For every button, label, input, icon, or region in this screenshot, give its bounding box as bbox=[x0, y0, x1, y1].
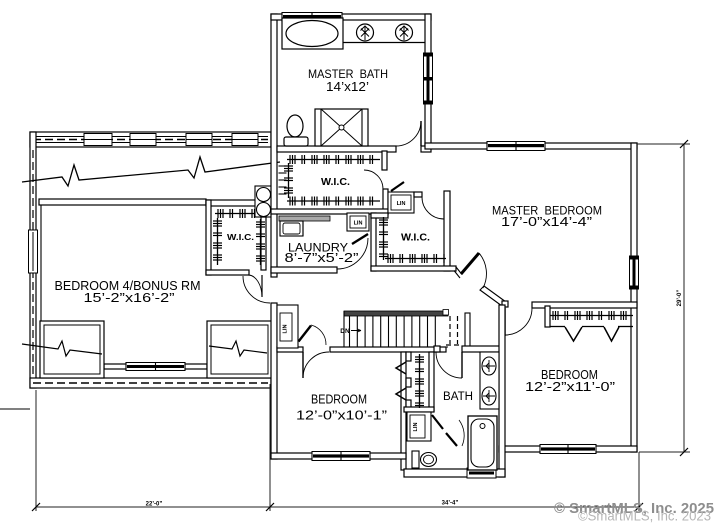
svg-text:12’-2”x11’-0”: 12’-2”x11’-0” bbox=[525, 380, 615, 394]
svg-text:W.I.C.: W.I.C. bbox=[321, 176, 350, 188]
svg-text:BATH: BATH bbox=[443, 391, 473, 403]
svg-text:12’-0”x10’-1”: 12’-0”x10’-1” bbox=[296, 409, 387, 423]
svg-text:29’-0”: 29’-0” bbox=[677, 290, 683, 307]
svg-text:8’-7”x5’-2”: 8’-7”x5’-2” bbox=[285, 251, 359, 265]
svg-text:LIN: LIN bbox=[283, 325, 289, 334]
svg-text:22’-0”: 22’-0” bbox=[146, 502, 163, 508]
svg-text:LIN: LIN bbox=[397, 201, 406, 207]
svg-text:DN: DN bbox=[340, 328, 350, 335]
svg-text:W.I.C.: W.I.C. bbox=[227, 232, 254, 242]
svg-text:©SmartMLS, Inc. 2023: ©SmartMLS, Inc. 2023 bbox=[578, 508, 711, 524]
svg-text:17’-0”x14’-4”: 17’-0”x14’-4” bbox=[501, 215, 592, 229]
svg-text:W.I.C.: W.I.C. bbox=[401, 232, 430, 244]
svg-text:34’-4”: 34’-4” bbox=[442, 501, 459, 507]
svg-text:14’x12’: 14’x12’ bbox=[326, 80, 369, 94]
svg-text:15’-2”x16’-2”: 15’-2”x16’-2” bbox=[84, 291, 175, 305]
svg-text:LIN: LIN bbox=[413, 423, 419, 432]
svg-text:BEDROOM: BEDROOM bbox=[311, 393, 367, 407]
svg-text:MASTER BATH: MASTER BATH bbox=[308, 67, 388, 81]
svg-text:LIN: LIN bbox=[354, 221, 363, 227]
